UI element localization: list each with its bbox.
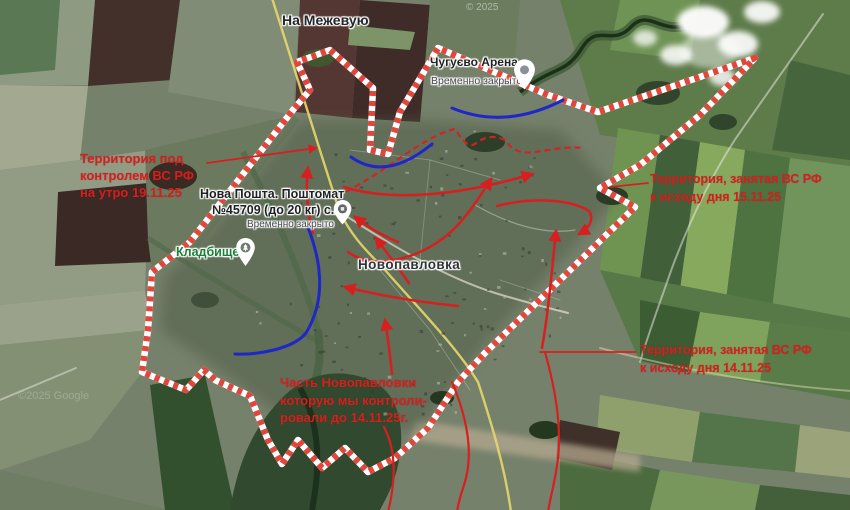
parcel-locker-pin-icon[interactable]	[332, 199, 353, 226]
imagery-watermark-top: © 2025	[466, 2, 498, 14]
satellite-map-canvas[interactable]	[0, 0, 850, 510]
annotation-captured-15-11: Территория, занятая ВС РФ к исходу дня 1…	[650, 170, 822, 206]
annotation-town-part: Часть Новопавловки которую мы контроли- …	[280, 374, 427, 427]
poi-arena-status: Временно закрыто	[431, 75, 522, 87]
cemetery-pin-icon[interactable]	[234, 237, 257, 268]
imagery-watermark-bottom: ©2025 Google	[18, 390, 89, 403]
poi-nova-poshta-name-line1: Нова Пошта. Поштомат	[200, 187, 344, 201]
annotation-controlled-area: Территория под контролем ВС РФ на утро 1…	[80, 150, 194, 201]
map-viewport[interactable]: © 2025 ©2025 Google На Межевую Новопавло…	[0, 0, 850, 510]
city-label-novopavlovka: Новопавловка	[358, 257, 460, 273]
poi-arena-name: Чугуєво Арена	[430, 56, 518, 70]
annotation-captured-14-11: Территория, занятая ВС РФ к исходу дня 1…	[640, 341, 812, 377]
poi-nova-poshta-name-line2: №45709 (до 20 кг) с...	[212, 203, 341, 217]
poi-nova-poshta-status: Временно закрыто	[247, 219, 334, 231]
road-direction-label: На Межевую	[282, 12, 369, 28]
arena-place-pin-icon[interactable]	[512, 58, 537, 92]
poi-cemetery-name: Кладбище	[176, 245, 239, 259]
